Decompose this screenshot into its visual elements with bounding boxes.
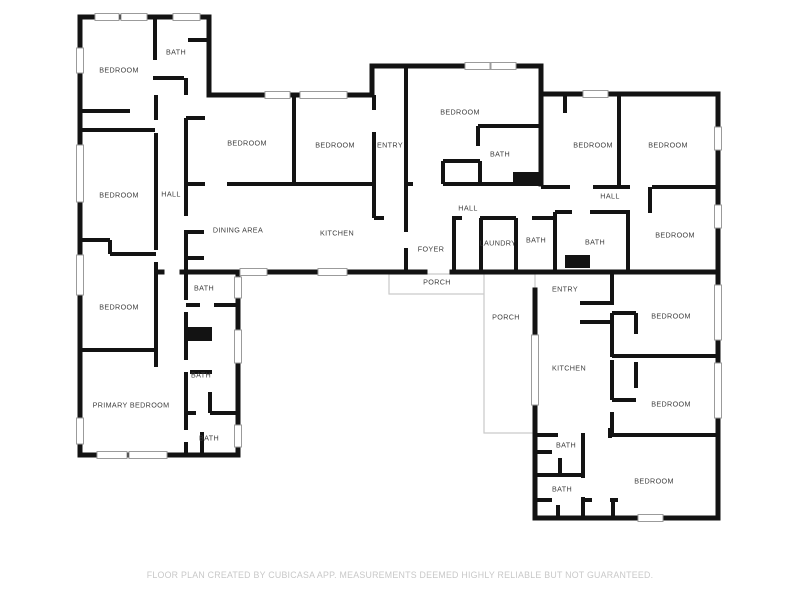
room-label: ENTRY <box>377 141 403 150</box>
room-label: BEDROOM <box>634 477 674 486</box>
window <box>129 452 167 459</box>
room-label: BATH <box>556 441 576 450</box>
room-label: BATH <box>194 284 214 293</box>
room-label: KITCHEN <box>320 229 354 238</box>
fixture <box>513 172 541 184</box>
room-label: BATH <box>552 485 572 494</box>
room-label: HALL <box>161 190 180 199</box>
windows <box>77 14 722 522</box>
room-label: BATH <box>585 238 605 247</box>
window <box>95 14 119 21</box>
room-label: KITCHEN <box>552 364 586 373</box>
room-label: BEDROOM <box>651 400 691 409</box>
window <box>583 91 608 98</box>
porch-side <box>484 274 535 433</box>
room-label: HALL <box>600 192 619 201</box>
floor-plan-drawing: BEDROOMBATHBEDROOMHALLBEDROOMBEDROOMENTR… <box>0 0 800 600</box>
window <box>715 205 722 228</box>
window <box>235 330 242 363</box>
room-label: BEDROOM <box>99 303 139 312</box>
room-label: PORCH <box>423 278 451 287</box>
window <box>77 255 84 295</box>
window <box>465 63 490 70</box>
fixture <box>187 327 212 341</box>
room-label: BEDROOM <box>227 139 267 148</box>
window <box>300 92 347 99</box>
window <box>173 14 200 21</box>
room-label: DINING AREA <box>213 226 263 235</box>
room-label: PORCH <box>492 313 520 322</box>
room-label: HALL <box>458 204 477 213</box>
window <box>638 515 663 522</box>
porch-outlines <box>389 274 535 433</box>
fixture <box>565 255 590 268</box>
room-label: BEDROOM <box>99 66 139 75</box>
room-label: BATH <box>199 434 219 443</box>
window <box>532 335 539 405</box>
window <box>235 425 242 447</box>
room-label: BEDROOM <box>315 141 355 150</box>
window <box>235 277 242 298</box>
room-label: BEDROOM <box>99 191 139 200</box>
room-label: ENTRY <box>552 285 578 294</box>
window <box>715 127 722 150</box>
room-label: BATH <box>526 236 546 245</box>
room-label: PRIMARY BEDROOM <box>93 401 170 410</box>
window <box>77 418 84 444</box>
window <box>715 363 722 418</box>
room-label: BATH <box>166 48 186 57</box>
room-label: BEDROOM <box>573 141 613 150</box>
window <box>491 63 516 70</box>
window <box>240 269 267 276</box>
window <box>77 48 84 73</box>
exterior-walls <box>80 17 718 518</box>
window <box>318 269 347 276</box>
window <box>97 452 127 459</box>
window <box>77 145 84 202</box>
room-label: BEDROOM <box>651 312 691 321</box>
window <box>121 14 147 21</box>
room-label: BATH <box>191 371 211 380</box>
room-label: BEDROOM <box>648 141 688 150</box>
room-label: BATH <box>490 150 510 159</box>
room-label: FOYER <box>418 245 445 254</box>
window <box>715 285 722 340</box>
footer-disclaimer: FLOOR PLAN CREATED BY CUBICASA APP. MEAS… <box>0 570 800 580</box>
room-label: LAUNDRY <box>480 239 517 248</box>
floor-plan-page: BEDROOMBATHBEDROOMHALLBEDROOMBEDROOMENTR… <box>0 0 800 600</box>
room-label: BEDROOM <box>655 231 695 240</box>
room-label: BEDROOM <box>440 108 480 117</box>
window <box>265 92 290 99</box>
